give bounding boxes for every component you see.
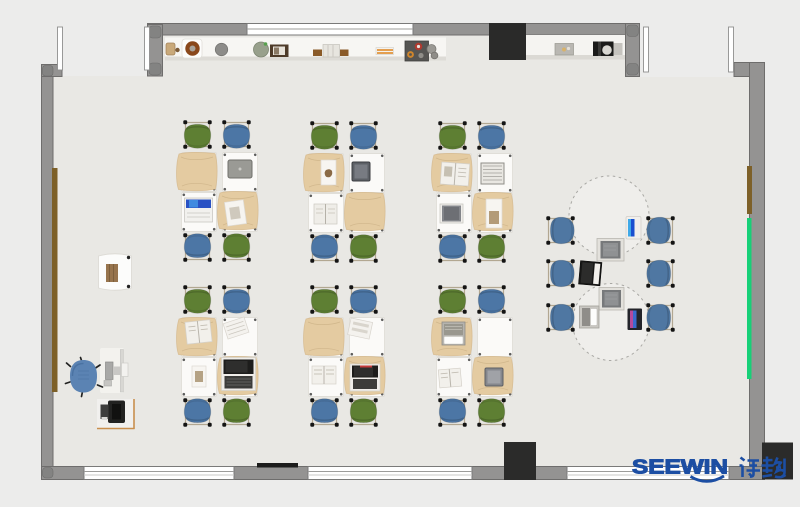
- svg-text:SEEWIN: SEEWIN: [632, 456, 728, 479]
